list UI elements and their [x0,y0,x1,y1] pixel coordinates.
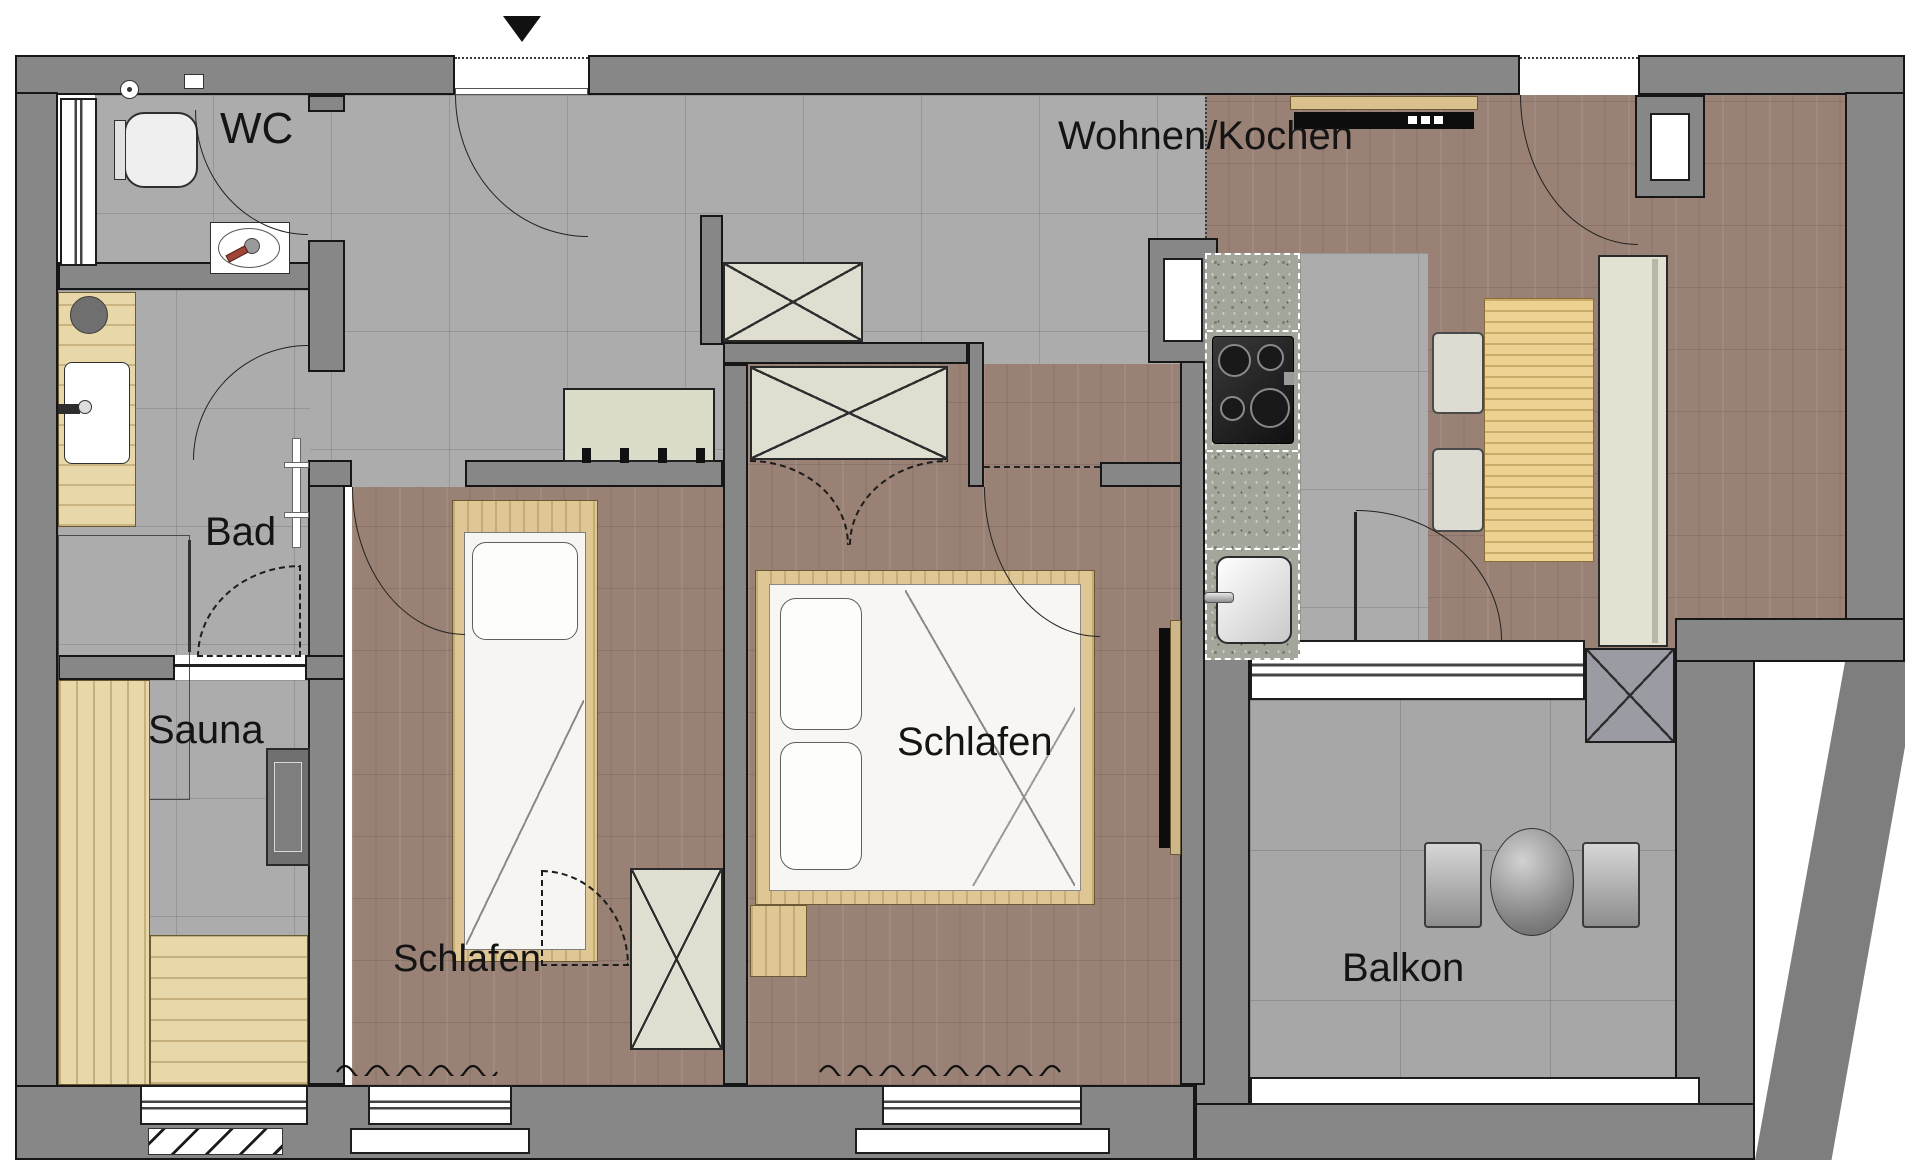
wall-balcony-bottom [1195,1103,1755,1160]
coat-peg-4 [696,448,705,463]
sauna-glass-door [175,664,305,667]
dining-chair-2 [1432,448,1484,532]
window-sill-center [855,1128,1110,1154]
dining-chair-1 [1432,332,1484,414]
room-label-wohnen-kochen: Wohnen/Kochen [1058,114,1353,159]
coat-peg-1 [582,448,591,463]
bath-faucet-knob [78,400,92,414]
window-sill-left [350,1128,530,1154]
wall-top-left [15,55,455,95]
burner-1 [1218,344,1251,377]
toilet-cistern [114,120,126,180]
window-bedroom-left [368,1085,512,1125]
hifi-3 [1434,116,1443,124]
sink-faucet [1204,592,1234,603]
wardrobe-bedroom-center [750,366,948,460]
wall-top-middle [588,55,1520,95]
double-bed-pillow-1 [780,598,862,730]
wall-bedroom-center-jog [968,342,984,487]
wall-hall-bath [308,240,345,372]
dining-table [1484,298,1594,562]
bedroom-center-threshold [984,466,1100,468]
wall-bedroom-center-left [723,364,748,1085]
wall-wc-bottom [58,262,332,290]
living-door-threshold [1520,57,1638,59]
tv-lowboard-shelf [1290,96,1478,110]
balcony-sill [1250,1077,1700,1105]
single-bed-duvet-fold [466,700,584,945]
shower-glass [188,540,191,652]
window-bedroom-center [882,1085,1082,1125]
radiator-bedroom-left [335,1058,505,1076]
kitchen-counter-seg3 [1207,548,1298,550]
window-wc [60,98,97,266]
sideboard-edge [1652,259,1658,643]
wall-balcony-right [1675,640,1755,1105]
window-sauna [140,1085,308,1125]
entrance-marker-icon [503,16,541,42]
wall-top-right [1638,55,1905,95]
floor-plan: WC Bad Sauna Schlafen Schlafen Wohnen/Ko… [0,0,1920,1174]
tv-board [1170,620,1181,855]
wall-left [15,92,58,1160]
burner-4 [1250,388,1290,428]
shaft-window-living [1650,113,1690,181]
nightstand [750,905,807,977]
wall-facade-bevel [1755,662,1905,1160]
sauna-bench-left [58,680,150,1085]
coat-peg-3 [658,448,667,463]
sauna-heater-inner [274,762,302,852]
wall-hall-stub [700,215,723,345]
room-label-schlafen-mitte: Schlafen [897,720,1053,765]
room-label-sauna: Sauna [148,708,264,753]
toilet [124,112,198,188]
room-label-bad: Bad [205,510,276,555]
cooktop-control [1284,372,1294,385]
balcony-chair-2 [1582,842,1640,928]
kitchen-walkway-floor [1300,253,1428,640]
kitchen-counter-seg1 [1207,330,1298,332]
room-label-schlafen-links: Schlafen [393,938,541,981]
balcony-table [1490,828,1574,936]
wardrobe-bedroom-left [630,868,723,1050]
wall-bedroom-left-top-a [308,460,352,487]
entrance-threshold [455,57,588,59]
bath-stool [70,296,108,334]
burner-2 [1257,344,1284,371]
kitchen-counter-seg2 [1207,450,1298,452]
sauna-bench-bottom [150,935,308,1085]
single-bed-pillow [472,542,578,640]
wall-bedroom-left-top-b [465,460,723,487]
burner-3 [1220,396,1245,421]
balcony-door-window [1250,640,1585,700]
bath-faucet [58,404,80,414]
radiator-bedroom-center [818,1058,1068,1076]
wall-bedroom-kitchen [1180,360,1205,1085]
soap-dispenser [184,74,204,89]
double-bed-pillow-2 [780,742,862,870]
wall-bedroom-center-top-a [723,342,968,364]
coat-peg-2 [620,448,629,463]
wall-living-bottom-right [1675,618,1905,662]
balcony-door-leaf [1354,512,1357,640]
tv [1159,628,1170,848]
balcony-chair-1 [1424,842,1482,928]
entrance-door-leaf [455,88,588,95]
hifi-1 [1408,116,1417,124]
louver-vent [148,1128,283,1155]
wall-bath-sauna-right [305,655,345,680]
wall-right [1845,92,1905,662]
wall-wc-door-stub [308,95,345,112]
room-label-balkon: Balkon [1342,946,1464,991]
wall-bedrooms-left [308,460,345,1085]
installation-shaft [1585,648,1675,743]
room-label-wc: WC [220,104,293,154]
towel-rail [292,438,301,548]
towel-rail-bar1 [284,462,309,468]
toilet-paper-dot [127,87,132,92]
wardrobe-hall [723,262,863,342]
hifi-2 [1421,116,1430,124]
shaft-window-hall [1163,258,1203,342]
towel-rail-bar2 [284,512,309,518]
